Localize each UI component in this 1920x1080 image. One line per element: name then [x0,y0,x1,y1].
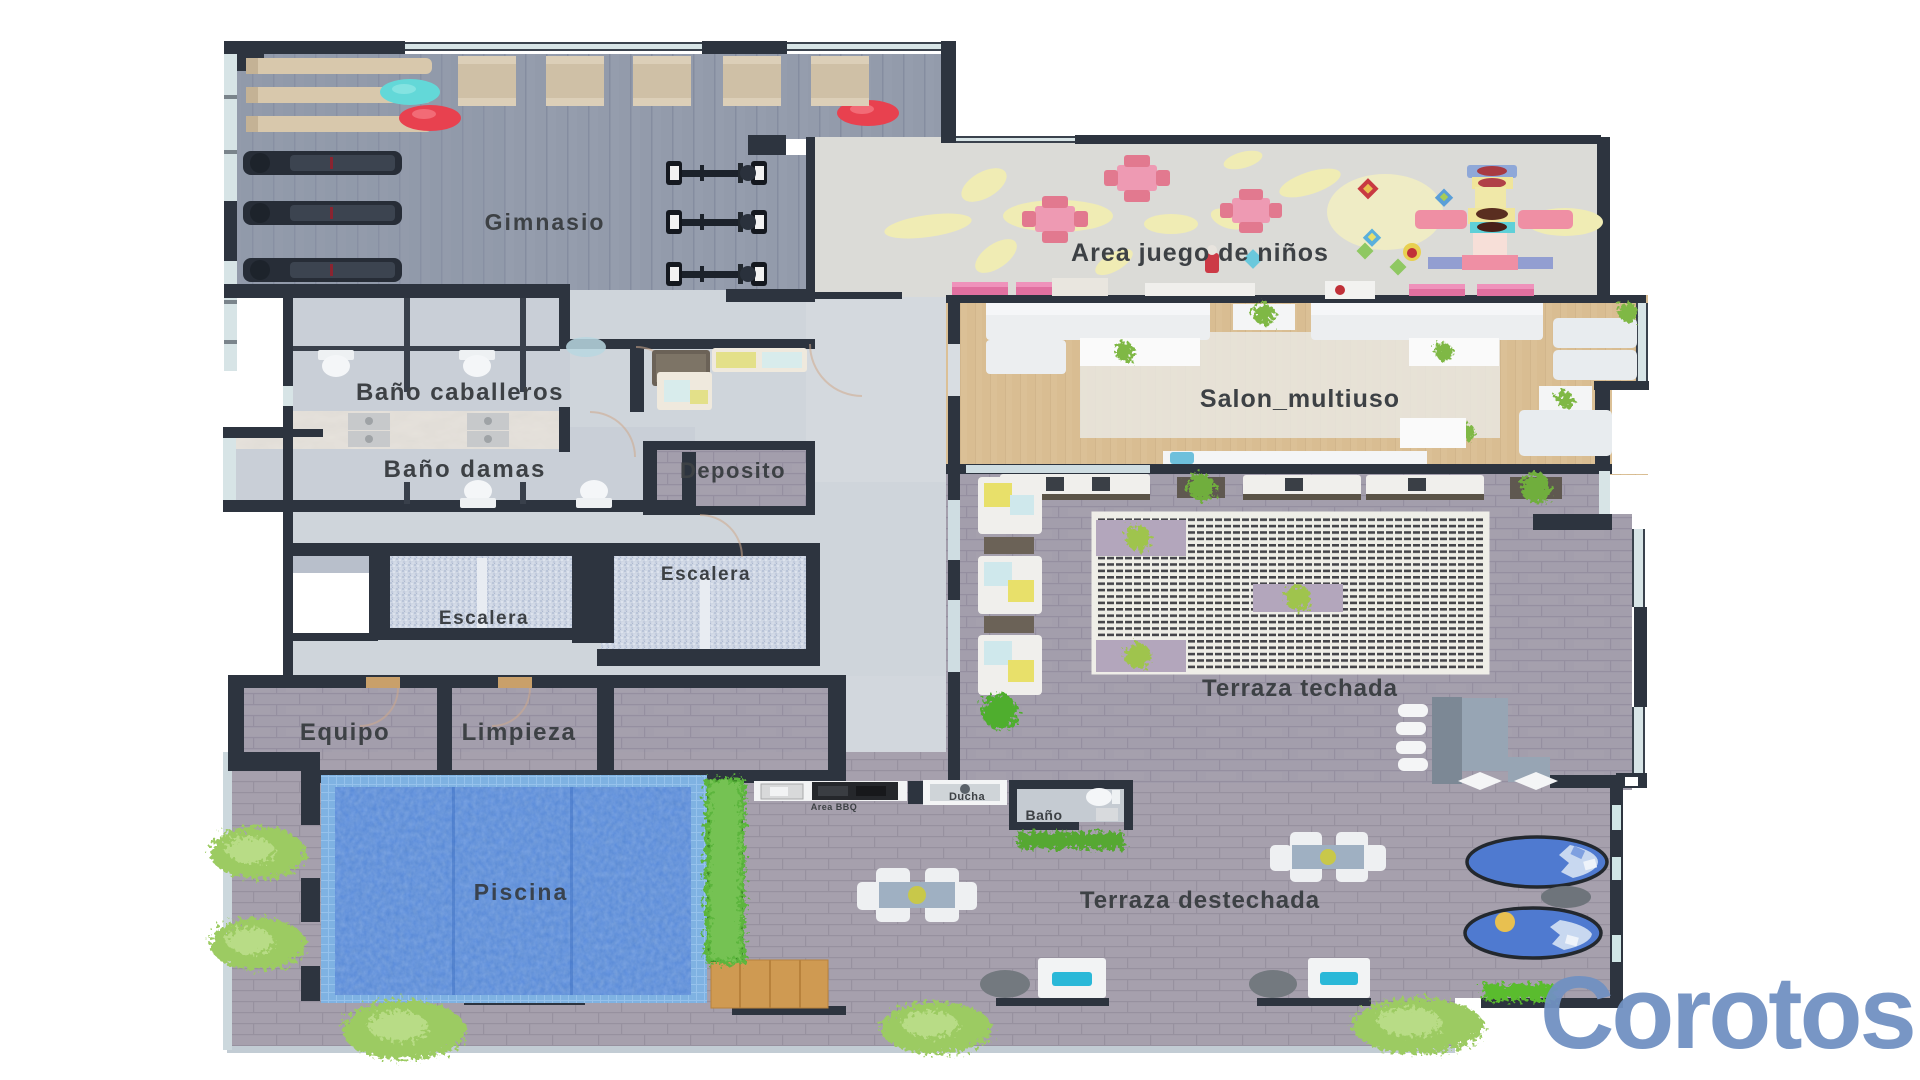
svg-text:Area BBQ: Area BBQ [811,802,858,812]
svg-text:Deposito: Deposito [680,458,786,483]
svg-text:Baño damas: Baño damas [384,456,547,483]
svg-text:Piscina: Piscina [474,879,569,905]
svg-text:Terraza techada: Terraza techada [1202,675,1398,702]
svg-text:Area juego de niños: Area juego de niños [1071,239,1329,267]
svg-text:Corotos: Corotos [1540,955,1914,1070]
svg-text:Baño caballeros: Baño caballeros [356,379,564,406]
svg-text:Terraza destechada: Terraza destechada [1080,887,1320,914]
svg-text:Escalera: Escalera [661,564,751,585]
svg-text:Equipo: Equipo [300,719,390,746]
svg-text:Escalera: Escalera [439,608,529,629]
svg-text:Baño: Baño [1026,807,1063,823]
svg-text:Gimnasio: Gimnasio [485,209,606,235]
svg-text:Limpieza: Limpieza [462,719,577,746]
svg-text:Ducha: Ducha [949,791,986,803]
svg-text:Salon_multiuso: Salon_multiuso [1200,385,1400,413]
